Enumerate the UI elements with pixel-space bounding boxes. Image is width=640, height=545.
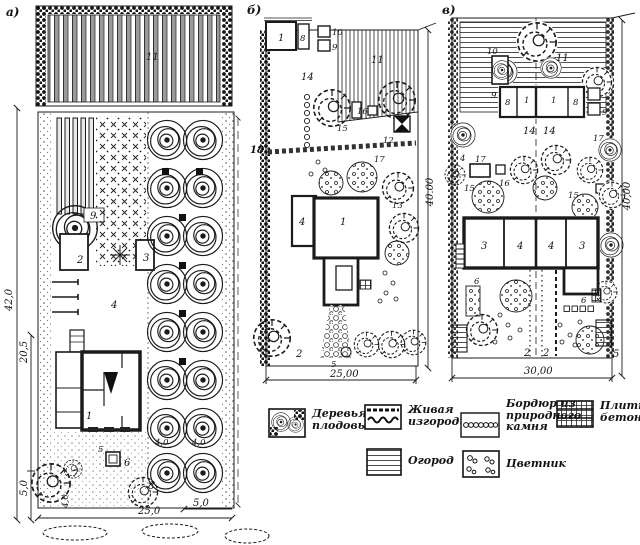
callout-b13: 13: [392, 201, 403, 211]
callout-b15: 15: [337, 124, 348, 134]
dim-v-depth: 40,00: [622, 181, 633, 211]
legend-item-hedge: Живая изгородь: [364, 404, 466, 430]
fruit-trees-icon: [268, 408, 306, 438]
callout-v5: 5: [613, 349, 619, 360]
callout-18: 18: [250, 145, 264, 156]
callout-b17: 17: [374, 155, 385, 165]
hedge-icon: [364, 404, 402, 430]
callout-h1: 1: [340, 217, 346, 228]
dim-b-depth: 40.00: [425, 177, 436, 207]
callout-h4l: 4: [516, 241, 523, 252]
star-plant: [110, 245, 130, 265]
structure-6: [106, 452, 120, 466]
figure-page: а) 11 9 2: [0, 0, 640, 545]
dim-20-5: 20,5: [19, 341, 30, 364]
legend: Деревья плодовые Живая изгородь Огород: [258, 390, 640, 540]
callout-v8l: 8: [505, 98, 511, 108]
plan-a-letter: а): [6, 5, 19, 19]
well-symbol: [394, 116, 410, 132]
callout-v8r: 8: [573, 98, 579, 108]
dim-25: 25,0: [137, 506, 161, 517]
callout-2: 2: [76, 255, 83, 266]
hedge-strip-left: [448, 18, 458, 358]
spacing-1: 4,0: [154, 438, 169, 448]
dim-v-width: 30,00: [524, 366, 553, 377]
callout-b1: 1: [278, 33, 284, 44]
callout-v1l: 1: [524, 96, 529, 106]
callout-9: 9: [90, 211, 97, 222]
street-shrubs: [43, 524, 269, 543]
callout-v4: 4: [459, 154, 465, 164]
dim-5-left: 5,0: [19, 479, 30, 496]
plan-b-letter: б): [247, 3, 261, 17]
plan-b: б) 18 1 8 10 9 11 14 15 16: [247, 3, 436, 384]
dim-5-bottom: 5,0: [193, 498, 210, 509]
callout-v14r: 14: [543, 126, 556, 137]
spacing-3: 4,0: [61, 494, 71, 509]
callout-v14l: 14: [523, 126, 536, 137]
flower-garden-icon: [462, 450, 500, 478]
callout-v2l: 2: [523, 348, 530, 359]
legend-label: Плитка бетонная: [600, 400, 640, 428]
callout-v2r: 2: [542, 348, 549, 359]
callout-v1r: 1: [551, 96, 556, 106]
callout-b11: 11: [371, 55, 384, 66]
plan-a-top-garden: 11: [36, 6, 232, 106]
callout-h4r: 4: [547, 241, 554, 252]
callout-v15l: 15: [464, 184, 475, 194]
concrete-tile-icon: [556, 400, 594, 428]
spacing-2: 4,0: [191, 438, 206, 448]
callout-b2: 2: [295, 349, 302, 360]
legend-item-flower-garden: Цветник: [462, 450, 566, 478]
dim-42: 42,0: [4, 288, 15, 312]
structure-2: [60, 234, 88, 270]
garden-icon: [366, 448, 402, 476]
callout-v9l: 9: [491, 91, 497, 101]
legend-label: Цветник: [506, 458, 566, 478]
legend-label: Огород: [408, 455, 454, 476]
callout-v15r: 15: [568, 191, 579, 201]
callout-6: 6: [124, 458, 131, 469]
callout-5: 5: [98, 445, 103, 455]
callout-b16: 16: [357, 107, 368, 117]
callout-h3r: 3: [579, 241, 585, 252]
callout-v6r: 6: [581, 296, 587, 306]
legend-item-concrete-tile: Плитка бетонная: [556, 400, 640, 428]
legend-item-garden: Огород: [366, 448, 454, 476]
dim-b-width: 25,00: [329, 369, 359, 380]
callout-v6l: 6: [474, 277, 480, 287]
legend-item-fruit-trees: Деревья плодовые: [268, 408, 376, 438]
callout-1-house: 1: [86, 411, 92, 422]
legend-label: Живая изгородь: [408, 404, 466, 430]
callout-4-lawn: 4: [110, 300, 117, 311]
callout-h4: 4: [298, 217, 305, 228]
callout-b9: 9: [332, 43, 338, 53]
callout-3: 3: [143, 253, 149, 264]
plan-v-letter: в): [442, 3, 456, 17]
callout-v9r: 9: [602, 108, 608, 118]
callout-v10: 10: [487, 47, 498, 57]
plan-v: в) 10 11 8 1 1 8 9 9: [442, 3, 635, 382]
callout-v11: 11: [556, 53, 569, 64]
callout-h3l: 3: [481, 241, 487, 252]
outbuilding-1-8: 1 8: [264, 18, 312, 50]
stone-border-icon: [460, 412, 500, 438]
callout-b14: 14: [301, 72, 314, 83]
plan-a-plot: 9 2 3 4 1: [32, 112, 238, 508]
hedge-strip: [260, 30, 270, 366]
plan-a: а) 11 9 2: [4, 5, 269, 543]
callout-garden-11: 11: [146, 52, 159, 63]
callout-b8: 8: [300, 34, 306, 44]
